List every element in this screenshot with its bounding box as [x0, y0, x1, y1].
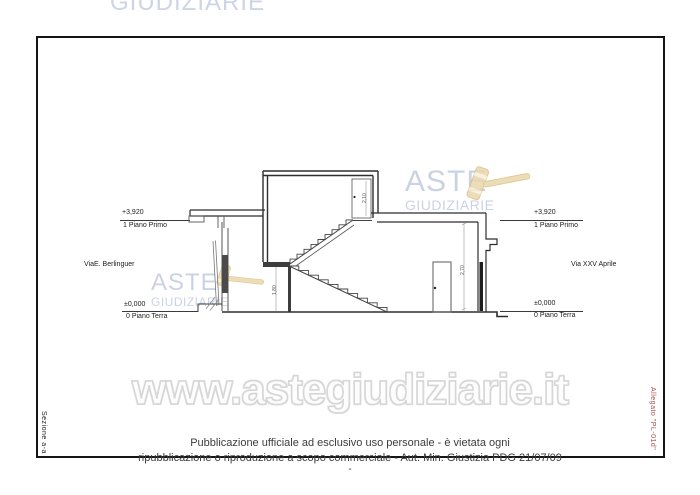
level-value-upper-left: +3,920: [122, 209, 144, 217]
dimension-text-ground-floor: 2,70: [460, 265, 466, 275]
first-floor-slab-left: [189, 210, 265, 228]
door-ground-floor: [433, 262, 451, 312]
footer-dash: -: [0, 464, 700, 475]
level-value-upper-right: +3,920: [534, 209, 556, 217]
level-value-lower-left: ±0,000: [124, 301, 145, 309]
dimension-text-stair: 1,80: [272, 285, 278, 295]
floor-name-lower-left: 0 Piano Terra: [126, 313, 168, 321]
right-wall: [478, 213, 497, 312]
street-label-left: ViaE. Berlinguer: [84, 261, 134, 269]
footer-disclaimer-line2: ripubblicazione o riproduzione a scopo c…: [0, 452, 700, 464]
dimension-text-tower-door: 2,10: [362, 193, 368, 203]
site-url-watermark: www.astegiudiziarie.it: [132, 365, 568, 415]
section-drawing-linework: [0, 0, 700, 495]
footer-disclaimer-line1: Pubblicazione ufficiale ad esclusivo uso…: [0, 437, 700, 449]
auction-drawing-page: GIUDIZIARIE ASTE GIUDIZIARIE ASTE GIUDIZ…: [0, 0, 700, 495]
floor-name-upper-right: 1 Piano Primo: [534, 222, 578, 230]
level-lines: [120, 221, 583, 312]
left-wall: [206, 222, 228, 311]
stairs-lower-flight: [289, 266, 387, 312]
level-value-lower-right: ±0,000: [534, 300, 555, 308]
floor-name-lower-right: 0 Piano Terra: [534, 312, 576, 320]
ground-line: [186, 304, 508, 317]
street-label-right: Via XXV Aprile: [571, 261, 616, 269]
stairs-upper-flight: [290, 220, 354, 266]
first-floor-slab-right: [371, 213, 486, 222]
floor-name-upper-left: 1 Piano Primo: [123, 222, 167, 230]
